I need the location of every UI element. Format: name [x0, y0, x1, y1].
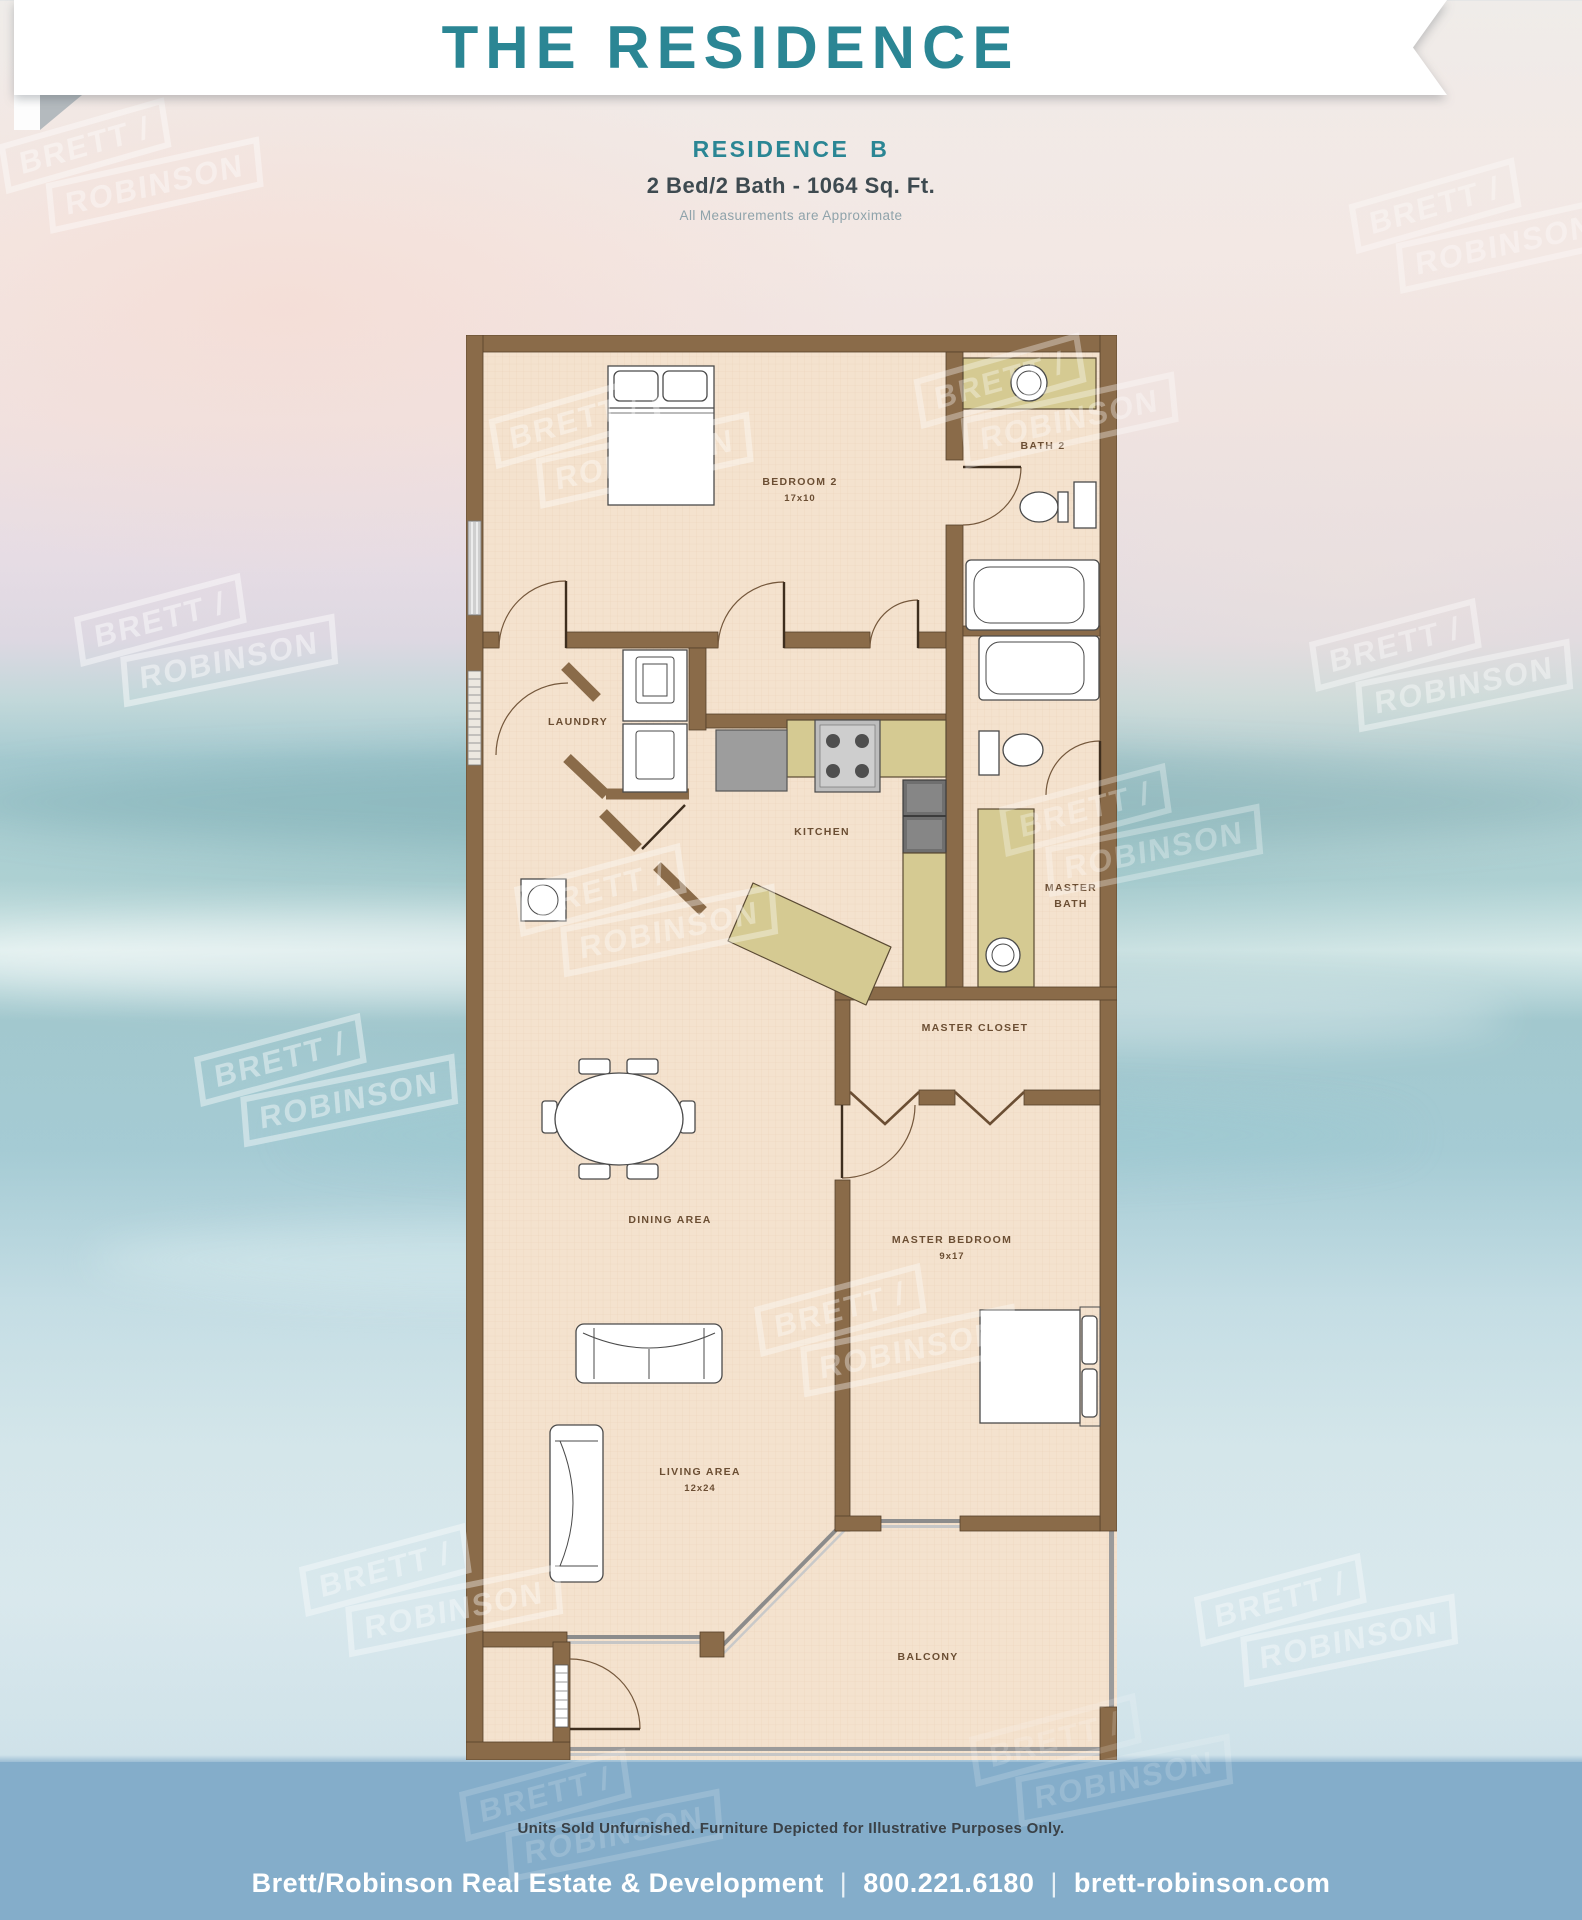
watermark-banner-bottom: ROBINSON — [1355, 639, 1573, 733]
master-shower-icon — [979, 636, 1099, 700]
kitchen-counter-run — [903, 853, 946, 987]
master-toilet-icon — [1003, 734, 1043, 766]
brett-robinson-watermark: BRETT /ROBINSON — [1306, 583, 1576, 742]
label-master-bath-1: MASTER — [1045, 882, 1097, 894]
separator: | — [824, 1868, 864, 1898]
watermark-banner-top: BRETT / — [299, 1523, 471, 1617]
accent-table-icon — [521, 879, 566, 921]
stove-icon — [815, 720, 880, 792]
phone-number: 800.221.6180 — [863, 1868, 1034, 1898]
refrigerator-icon — [903, 780, 946, 853]
label-master-bath-2: BATH — [1054, 898, 1088, 910]
label-master-bedroom-dims: 9x17 — [939, 1251, 964, 1262]
washer-dryer-icon — [623, 650, 687, 792]
loveseat-icon — [550, 1425, 603, 1582]
label-living-dims: 12x24 — [684, 1483, 715, 1494]
floor-plan: BEDROOM 2 17x10 BATH 2 LAUNDRY KITCHEN M… — [466, 335, 1117, 1760]
bedroom2-bed-icon — [608, 366, 714, 505]
label-master-closet: MASTER CLOSET — [922, 1022, 1029, 1034]
label-bath2: BATH 2 — [1021, 440, 1066, 452]
residence-name: RESIDENCE B — [0, 136, 1582, 163]
header-ribbon-fold — [40, 95, 82, 130]
separator: | — [1034, 1868, 1074, 1898]
unit-specs: 2 Bed/2 Bath - 1064 Sq. Ft. — [0, 173, 1582, 199]
watermark-banner-bottom: ROBINSON — [120, 614, 338, 708]
measurements-note: All Measurements are Approximate — [0, 208, 1582, 223]
page-title: THE RESIDENCE — [14, 0, 1447, 95]
kitchen-sink-cabinet — [716, 730, 787, 791]
watermark-banner-bottom: ROBINSON — [1240, 1594, 1458, 1688]
disclaimer-text: Units Sold Unfurnished. Furniture Depict… — [0, 1820, 1582, 1837]
watermark-banner-top: BRETT / — [1194, 1553, 1366, 1647]
master-sink-icon — [986, 938, 1020, 972]
watermark-banner-top: BRETT / — [194, 1013, 366, 1107]
label-laundry: LAUNDRY — [548, 716, 608, 728]
brett-robinson-watermark: BRETT /ROBINSON — [1191, 1538, 1461, 1697]
balcony-railing-right — [1109, 1531, 1114, 1707]
watermark-banner-bottom: ROBINSON — [240, 1054, 458, 1148]
label-dining: DINING AREA — [628, 1214, 711, 1226]
brett-robinson-watermark: BRETT /ROBINSON — [191, 998, 461, 1157]
label-kitchen: KITCHEN — [794, 826, 850, 838]
company-name: Brett/Robinson Real Estate & Development — [252, 1868, 824, 1898]
label-bedroom2-dims: 17x10 — [784, 493, 815, 504]
bath2-toilet-icon — [1020, 492, 1058, 522]
watermark-banner-top: BRETT / — [74, 573, 246, 667]
label-bedroom2: BEDROOM 2 — [762, 476, 837, 488]
brett-robinson-watermark: BRETT /ROBINSON — [71, 558, 341, 717]
balcony-railing-bottom — [570, 1747, 1100, 1751]
website: brett-robinson.com — [1074, 1868, 1331, 1898]
bath2-tub-icon — [966, 560, 1099, 630]
sofa-icon — [576, 1324, 722, 1383]
subheader: RESIDENCE B 2 Bed/2 Bath - 1064 Sq. Ft. … — [0, 136, 1582, 223]
watermark-banner-top: BRETT / — [1309, 598, 1481, 692]
label-balcony: BALCONY — [897, 1651, 958, 1663]
bath2-cabinet — [1074, 482, 1096, 528]
bath2-sink-icon — [1011, 365, 1047, 401]
window-left-1 — [468, 521, 481, 615]
footer-contact-line: Brett/Robinson Real Estate & Development… — [0, 1868, 1582, 1899]
label-living: LIVING AREA — [659, 1466, 741, 1478]
label-master-bedroom: MASTER BEDROOM — [892, 1234, 1012, 1246]
